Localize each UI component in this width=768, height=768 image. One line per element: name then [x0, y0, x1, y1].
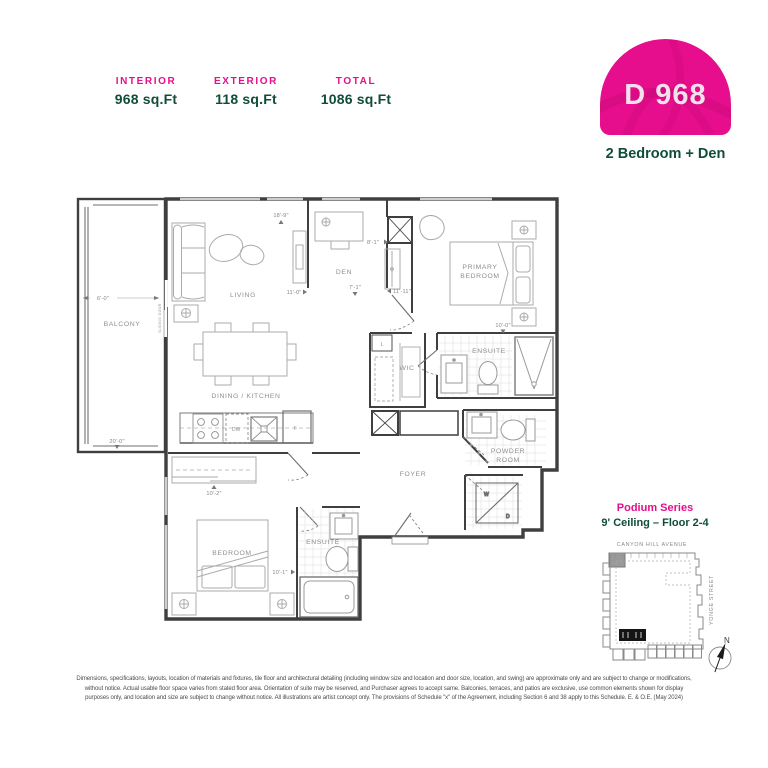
unit-type: 2 Bedroom + Den: [593, 146, 738, 162]
compass-north-label: N: [724, 636, 730, 645]
shaft-x-marks: [372, 217, 412, 435]
dim-primary-width: 11'-11": [393, 289, 411, 295]
stat-exterior-label: EXTERIOR: [214, 76, 278, 87]
room-label-foyer: FOYER: [400, 471, 426, 478]
dim-living-width: 18'-9": [273, 213, 288, 219]
powder-room-fixtures: [467, 412, 535, 441]
dim-bedroom-width: 10'-2": [206, 491, 221, 497]
dim-den-depth: 8'-1": [367, 240, 379, 246]
stat-exterior-value: 118 sq.Ft: [214, 91, 278, 107]
room-label-powder-2: ROOM: [496, 457, 520, 464]
stat-total: TOTAL 1086 sq.Ft: [321, 76, 391, 107]
primary-ensuite-fixtures: [441, 337, 553, 395]
stat-total-value: 1086 sq.Ft: [321, 91, 391, 107]
disclaimer-line-1: Dimensions, specifications, layouts, loc…: [50, 675, 718, 685]
room-label-ensuite-bedroom: ENSUITE: [306, 539, 340, 546]
room-label-primary-1: PRIMARY: [462, 264, 497, 271]
highlighted-unit: [619, 629, 646, 641]
stat-total-label: TOTAL: [321, 76, 391, 87]
compass: N: [709, 636, 731, 673]
sliding-door-label: SLIDING DOOR: [158, 303, 162, 333]
room-label-ensuite-primary: ENSUITE: [472, 348, 506, 355]
room-label-living: LIVING: [230, 292, 256, 299]
dim-balcony-width: 6'-0": [97, 296, 109, 302]
keyplan-map: CANYON HILL AVENUE YONGE STREET: [600, 537, 748, 675]
keyplan-series: Podium Series: [575, 502, 735, 514]
disclaimer-line-2: without notice. Actual usable floor spac…: [50, 685, 718, 695]
stat-interior: INTERIOR 968 sq.Ft: [115, 76, 178, 107]
stat-interior-label: INTERIOR: [115, 76, 178, 87]
washer-label: W: [484, 492, 489, 498]
street-label-top: CANYON HILL AVENUE: [617, 542, 687, 548]
dim-living-depth: 11'-0": [287, 290, 302, 296]
keyplan-ceiling: 9' Ceiling – Floor 2-4: [575, 517, 735, 529]
floorplan-drawing: 6'-0" BALCONY 20'-0" SLIDING DOOR: [60, 185, 560, 625]
unit-code: D 968: [600, 79, 731, 112]
room-label-bedroom: BEDROOM: [212, 550, 251, 557]
dim-den-width: 7'-1": [349, 285, 361, 291]
windows: [165, 198, 493, 609]
disclaimer-line-3: purposes only, and location and size are…: [50, 694, 718, 704]
stat-exterior: EXTERIOR 118 sq.Ft: [214, 76, 278, 107]
disclaimer: Dimensions, specifications, layouts, loc…: [50, 675, 718, 704]
dishwasher-label: DW: [232, 427, 241, 433]
balcony-area: 6'-0" BALCONY 20'-0": [78, 199, 165, 452]
dim-balcony-length: 20'-0": [109, 439, 124, 445]
room-label-den: DEN: [336, 269, 352, 276]
building-outline: [603, 553, 703, 660]
fridge-label: F: [294, 426, 297, 432]
floorplan-sheet: INTERIOR 968 sq.Ft EXTERIOR 118 sq.Ft TO…: [0, 0, 768, 768]
room-label-linen: L: [381, 342, 384, 348]
room-label-powder-1: POWDER: [491, 448, 525, 455]
stat-interior-value: 968 sq.Ft: [115, 91, 178, 107]
dim-primary-depth: 10'-0": [495, 323, 510, 329]
street-label-right: YONGE STREET: [709, 575, 715, 625]
room-label-primary-2: BEDROOM: [460, 273, 499, 280]
room-label-balcony: BALCONY: [104, 321, 141, 328]
dryer-label: D: [506, 514, 510, 520]
unit-badge: D 968: [600, 39, 731, 135]
living-furniture: [172, 223, 306, 385]
room-label-dining-kitchen: DINING / KITCHEN: [211, 393, 280, 400]
bedroom-furniture: [172, 457, 294, 615]
room-label-wic: WIC: [399, 365, 414, 372]
dim-bedroom-depth: 10'-1": [272, 570, 287, 576]
